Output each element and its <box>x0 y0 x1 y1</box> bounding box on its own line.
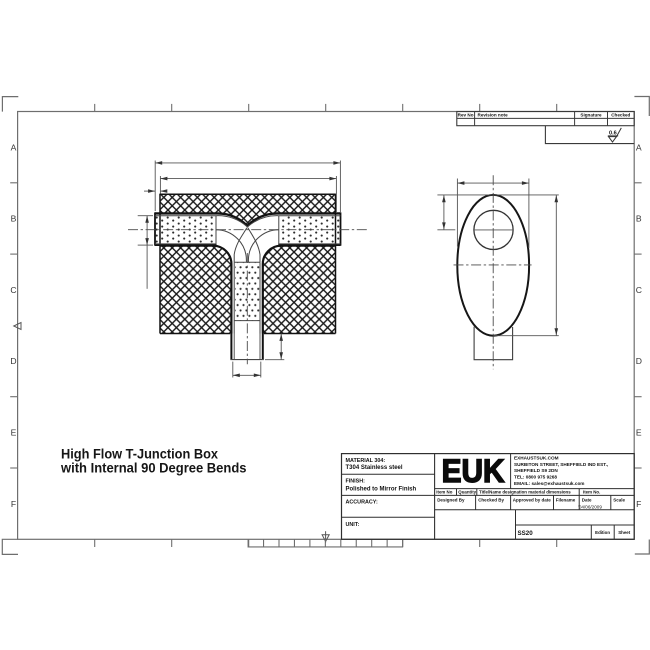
svg-text:TEL: 0800 975 9268: TEL: 0800 975 9268 <box>514 475 557 480</box>
svg-text:SS20: SS20 <box>518 530 534 537</box>
svg-text:Polished to Mirror Finish: Polished to Mirror Finish <box>346 487 417 493</box>
svg-text:Date: Date <box>582 497 592 502</box>
svg-text:MATERIAL 304:: MATERIAL 304: <box>346 458 386 464</box>
svg-text:A: A <box>636 142 642 152</box>
svg-text:Quantity: Quantity <box>458 490 476 495</box>
svg-text:B: B <box>11 214 17 224</box>
svg-text:D: D <box>636 356 642 366</box>
svg-text:Title/Name designation materia: Title/Name designation material dimensio… <box>479 490 571 495</box>
svg-text:Revision note: Revision note <box>478 113 509 118</box>
svg-text:'04/06/2009: '04/06/2009 <box>578 504 602 509</box>
svg-text:Designed By: Designed By <box>437 497 465 502</box>
svg-text:ACCURACY:: ACCURACY: <box>346 500 378 506</box>
svg-text:E: E <box>636 428 642 438</box>
svg-text:UNIT:: UNIT: <box>346 522 360 528</box>
svg-text:Signature: Signature <box>580 113 602 118</box>
svg-text:Sheet: Sheet <box>618 530 630 535</box>
svg-text:Checked: Checked <box>611 113 630 118</box>
svg-text:Item No.: Item No. <box>583 490 600 495</box>
svg-text:Item No: Item No <box>436 490 452 495</box>
svg-text:F: F <box>11 499 16 509</box>
svg-text:Approved by date: Approved by date <box>513 497 552 502</box>
svg-text:C: C <box>636 285 642 295</box>
svg-text:FINISH:: FINISH: <box>346 478 366 484</box>
svg-text:F: F <box>636 499 641 509</box>
svg-text:with Internal 90 Degree Bends: with Internal 90 Degree Bends <box>60 461 247 477</box>
svg-text:Rev No: Rev No <box>458 113 474 118</box>
svg-text:A: A <box>11 142 17 152</box>
svg-text:Edition: Edition <box>595 530 610 535</box>
svg-text:EXHAUSTSUK.COM: EXHAUSTSUK.COM <box>514 455 559 460</box>
svg-text:T304 Stainless steel: T304 Stainless steel <box>346 465 403 471</box>
svg-text:D: D <box>10 356 16 366</box>
svg-text:EMAIL: sales@exhaustsuk.com: EMAIL: sales@exhaustsuk.com <box>514 481 584 486</box>
svg-text:SHEFFIELD S9 2DN: SHEFFIELD S9 2DN <box>514 468 558 473</box>
svg-text:B: B <box>636 214 642 224</box>
svg-text:Filename: Filename <box>556 497 576 502</box>
svg-text:E: E <box>11 428 17 438</box>
svg-text:Checked By: Checked By <box>478 497 504 502</box>
svg-text:SURBITON STREET, SHEFFIELD IND: SURBITON STREET, SHEFFIELD IND EST., <box>514 462 608 467</box>
svg-text:C: C <box>10 285 16 295</box>
svg-text:EUK: EUK <box>442 453 505 489</box>
svg-text:Scale: Scale <box>613 497 625 502</box>
